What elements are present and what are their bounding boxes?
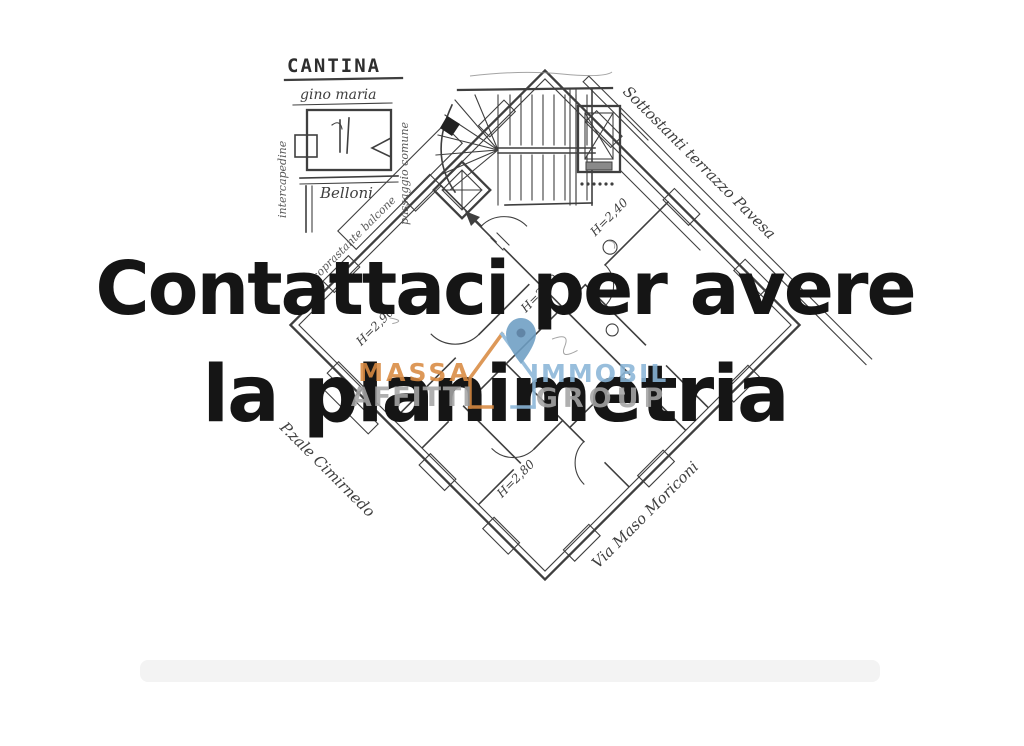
logo-word-affitti: AFFITTI [351, 382, 473, 413]
height-label: H=2,40 [587, 195, 631, 239]
watermark-text: Contattaci per avere la planimetria [95, 246, 914, 440]
height-label: H=2,80 [493, 457, 537, 501]
floor-plan-listing-image: H=2,90 H=2,80 H=2,40 H=2,80 Sottostanti … [0, 0, 1024, 746]
watermark-line-1: Contattaci per avere [95, 246, 914, 332]
cantina-title: CANTINA [287, 55, 381, 77]
terrace-annotation: Sottostanti terrazzo Pavesa [619, 82, 779, 242]
floor-plan-canvas: H=2,90 H=2,80 H=2,40 H=2,80 Sottostanti … [0, 0, 1024, 746]
logo-word-group: GROUP [536, 383, 669, 414]
scan-smudge [140, 660, 880, 682]
elevator-shaft-2 [434, 162, 491, 219]
street-annotation-right: Via Maso Moriconi [588, 458, 702, 572]
cantina-owner: Belloni [319, 184, 373, 202]
cantina-note: gino maria [300, 87, 376, 103]
cantina-left-label: intercapedine [276, 140, 289, 218]
watermark-line-2: la planimetria [202, 350, 787, 440]
cantina-right-label: passaggio comune [398, 121, 411, 225]
